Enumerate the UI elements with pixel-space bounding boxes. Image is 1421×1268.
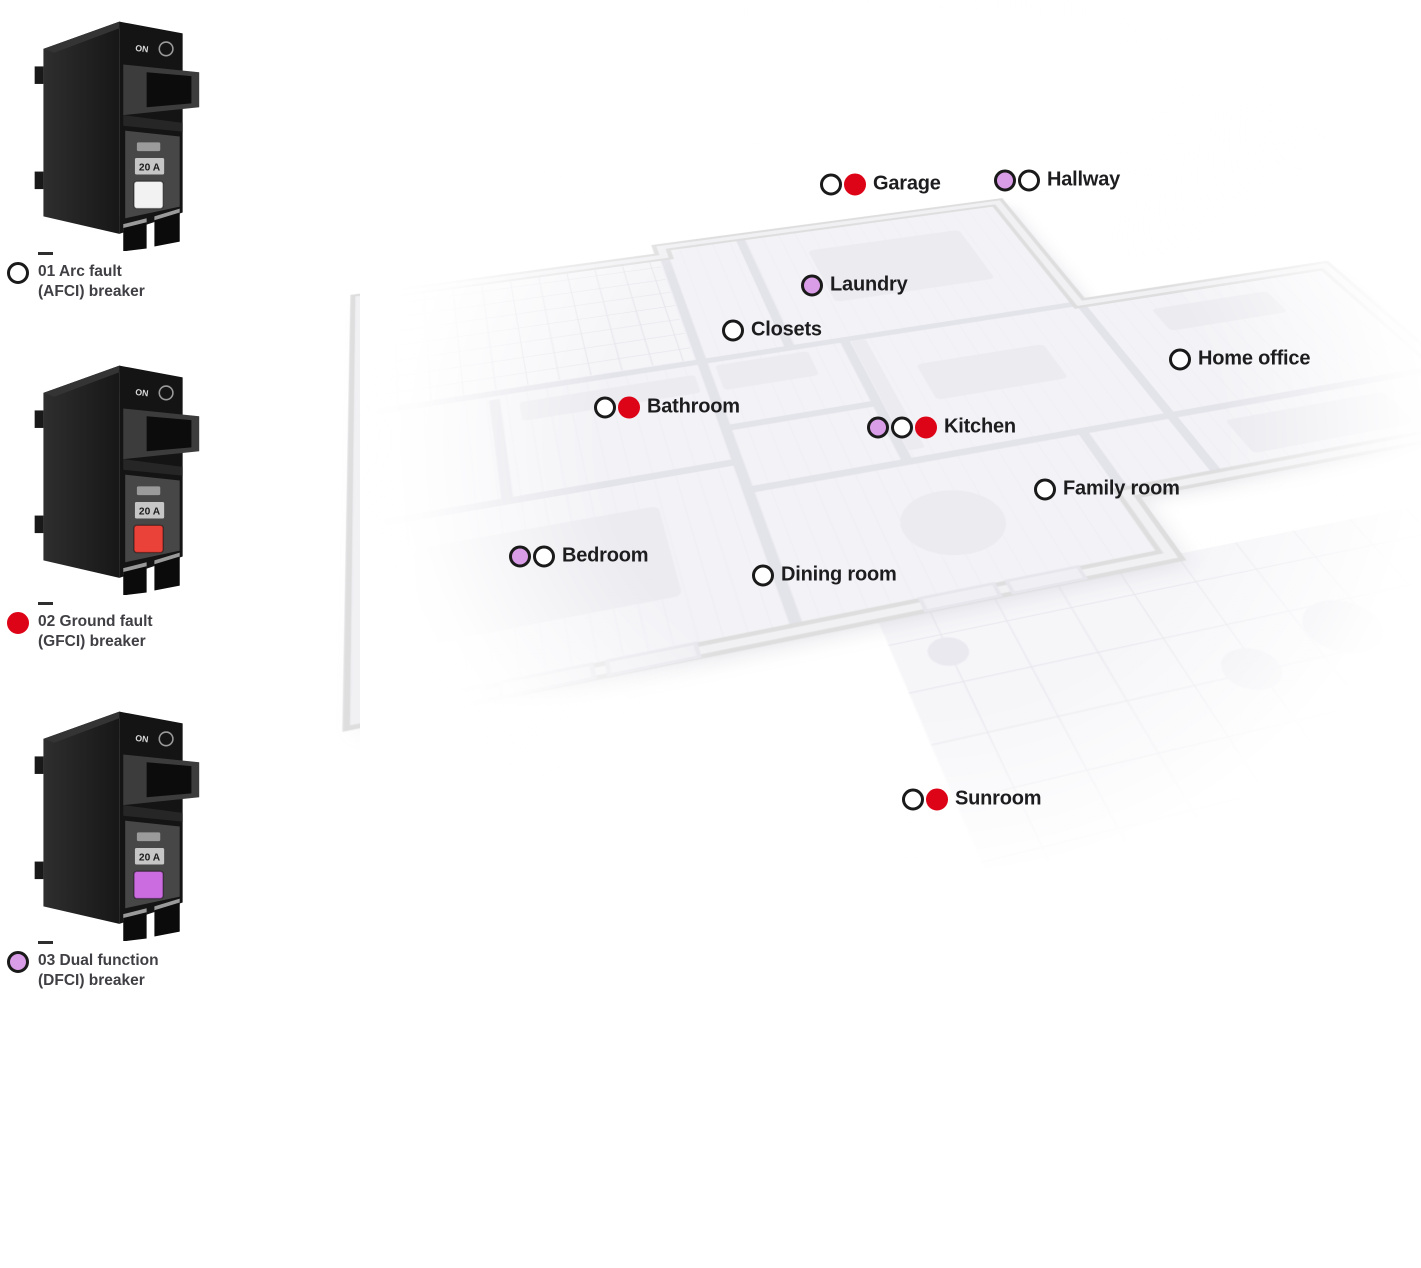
room-marker-hallway: Hallway <box>994 169 1120 192</box>
gfci-dot-icon <box>926 788 948 810</box>
room-marker-bathroom: Bathroom <box>594 396 740 419</box>
room-label: Home office <box>1198 348 1310 371</box>
room-marker-kitchen: Kitchen <box>867 416 1016 439</box>
dfci-dot-icon <box>509 545 531 567</box>
room-label: Hallway <box>1047 169 1120 192</box>
room-label: Garage <box>873 173 941 196</box>
room-marker-sunroom: Sunroom <box>902 788 1041 811</box>
room-marker-closets: Closets <box>722 319 822 342</box>
room-label: Family room <box>1063 478 1180 501</box>
afci-dot-icon <box>1018 169 1040 191</box>
afci-dot-icon <box>1034 478 1056 500</box>
afci-dot-icon <box>1169 348 1191 370</box>
afci-dot-icon <box>891 416 913 438</box>
room-label: Closets <box>751 319 822 342</box>
room-label: Kitchen <box>944 416 1016 439</box>
dfci-dot-icon <box>867 416 889 438</box>
afci-dot-icon <box>752 564 774 586</box>
room-label: Sunroom <box>955 788 1041 811</box>
gfci-dot-icon <box>915 416 937 438</box>
room-label: Bedroom <box>562 545 648 568</box>
room-marker-family-room: Family room <box>1034 478 1180 501</box>
dfci-dot-icon <box>801 274 823 296</box>
afci-dot-icon <box>902 788 924 810</box>
gfci-dot-icon <box>618 396 640 418</box>
room-label: Laundry <box>830 274 908 297</box>
room-marker-dining-room: Dining room <box>752 564 897 587</box>
afci-dot-icon <box>820 173 842 195</box>
afci-dot-icon <box>533 545 555 567</box>
room-marker-home-office: Home office <box>1169 348 1310 371</box>
gfci-dot-icon <box>844 173 866 195</box>
room-markers-layer: GarageHallwayLaundryClosetsHome officeBa… <box>0 0 1421 1000</box>
room-marker-laundry: Laundry <box>801 274 908 297</box>
room-label: Bathroom <box>647 396 740 419</box>
dfci-dot-icon <box>994 169 1016 191</box>
room-marker-garage: Garage <box>820 173 941 196</box>
room-label: Dining room <box>781 564 897 587</box>
afci-dot-icon <box>594 396 616 418</box>
afci-dot-icon <box>722 319 744 341</box>
room-marker-bedroom: Bedroom <box>509 545 648 568</box>
